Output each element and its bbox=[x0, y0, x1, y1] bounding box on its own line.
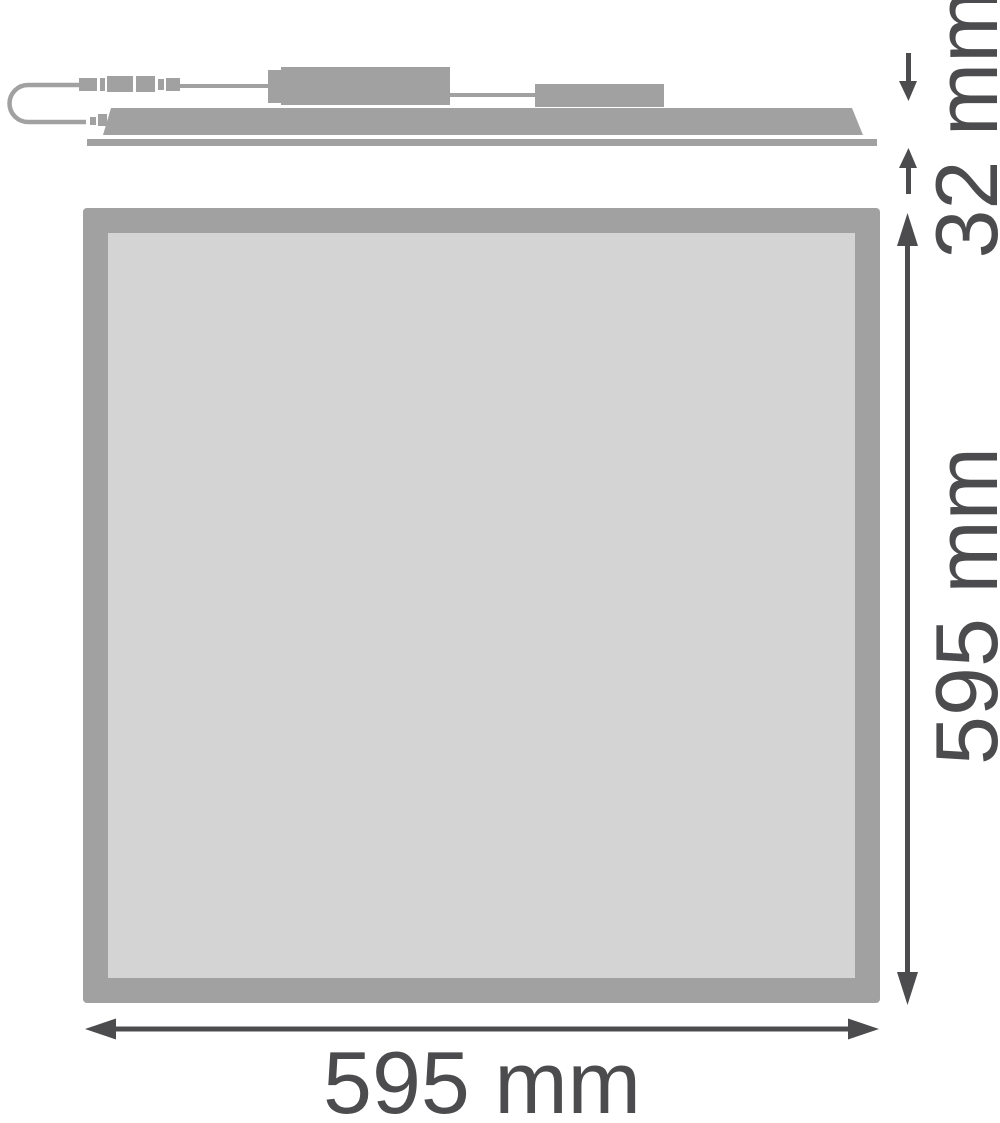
height-dimension: 595 mm bbox=[897, 213, 1000, 1005]
height-arrow-bottom bbox=[897, 972, 918, 1005]
width-arrow-right bbox=[848, 1019, 879, 1040]
cable-connector-segment bbox=[166, 78, 180, 91]
thickness-arrow-top-head bbox=[899, 81, 917, 101]
cable-connector-segment bbox=[107, 76, 133, 92]
driver-output-wire bbox=[450, 93, 535, 97]
side-view bbox=[10, 67, 878, 146]
cable-stub bbox=[98, 114, 107, 126]
thickness-arrow-bottom-shaft bbox=[906, 166, 911, 194]
driver-input-wire bbox=[180, 84, 268, 88]
thickness-arrow-bottom-head bbox=[899, 148, 917, 168]
width-dimension: 595 mm bbox=[85, 1019, 879, 1123]
led-panel-dimension-drawing: 32 mm 595 mm 595 mm bbox=[0, 0, 1000, 1123]
cable-connector-segment bbox=[158, 79, 164, 90]
thickness-dimension: 32 mm bbox=[899, 0, 1000, 258]
height-dimension-line bbox=[905, 240, 910, 976]
junction-box bbox=[535, 84, 664, 107]
panel-profile bbox=[103, 108, 863, 135]
driver-box-tab bbox=[268, 70, 281, 103]
front-view bbox=[83, 208, 880, 1003]
height-dimension-label: 595 mm bbox=[917, 447, 1000, 765]
thickness-arrow-top-shaft bbox=[906, 53, 911, 83]
panel-frame-flange bbox=[87, 139, 877, 146]
width-dimension-label: 595 mm bbox=[323, 1033, 641, 1123]
dimension-drawing-page: 32 mm 595 mm 595 mm bbox=[0, 0, 1000, 1123]
cable-stub bbox=[90, 117, 96, 125]
thickness-dimension-label: 32 mm bbox=[917, 0, 1000, 258]
cable-connector-segment bbox=[136, 76, 155, 92]
panel-diffuser bbox=[108, 233, 855, 978]
power-cable-loop bbox=[10, 85, 87, 122]
width-arrow-left bbox=[85, 1019, 116, 1040]
cable-connector-segment bbox=[79, 78, 97, 91]
width-dimension-line bbox=[112, 1027, 851, 1032]
driver-box bbox=[281, 67, 450, 105]
cable-connector-segment bbox=[100, 78, 105, 91]
